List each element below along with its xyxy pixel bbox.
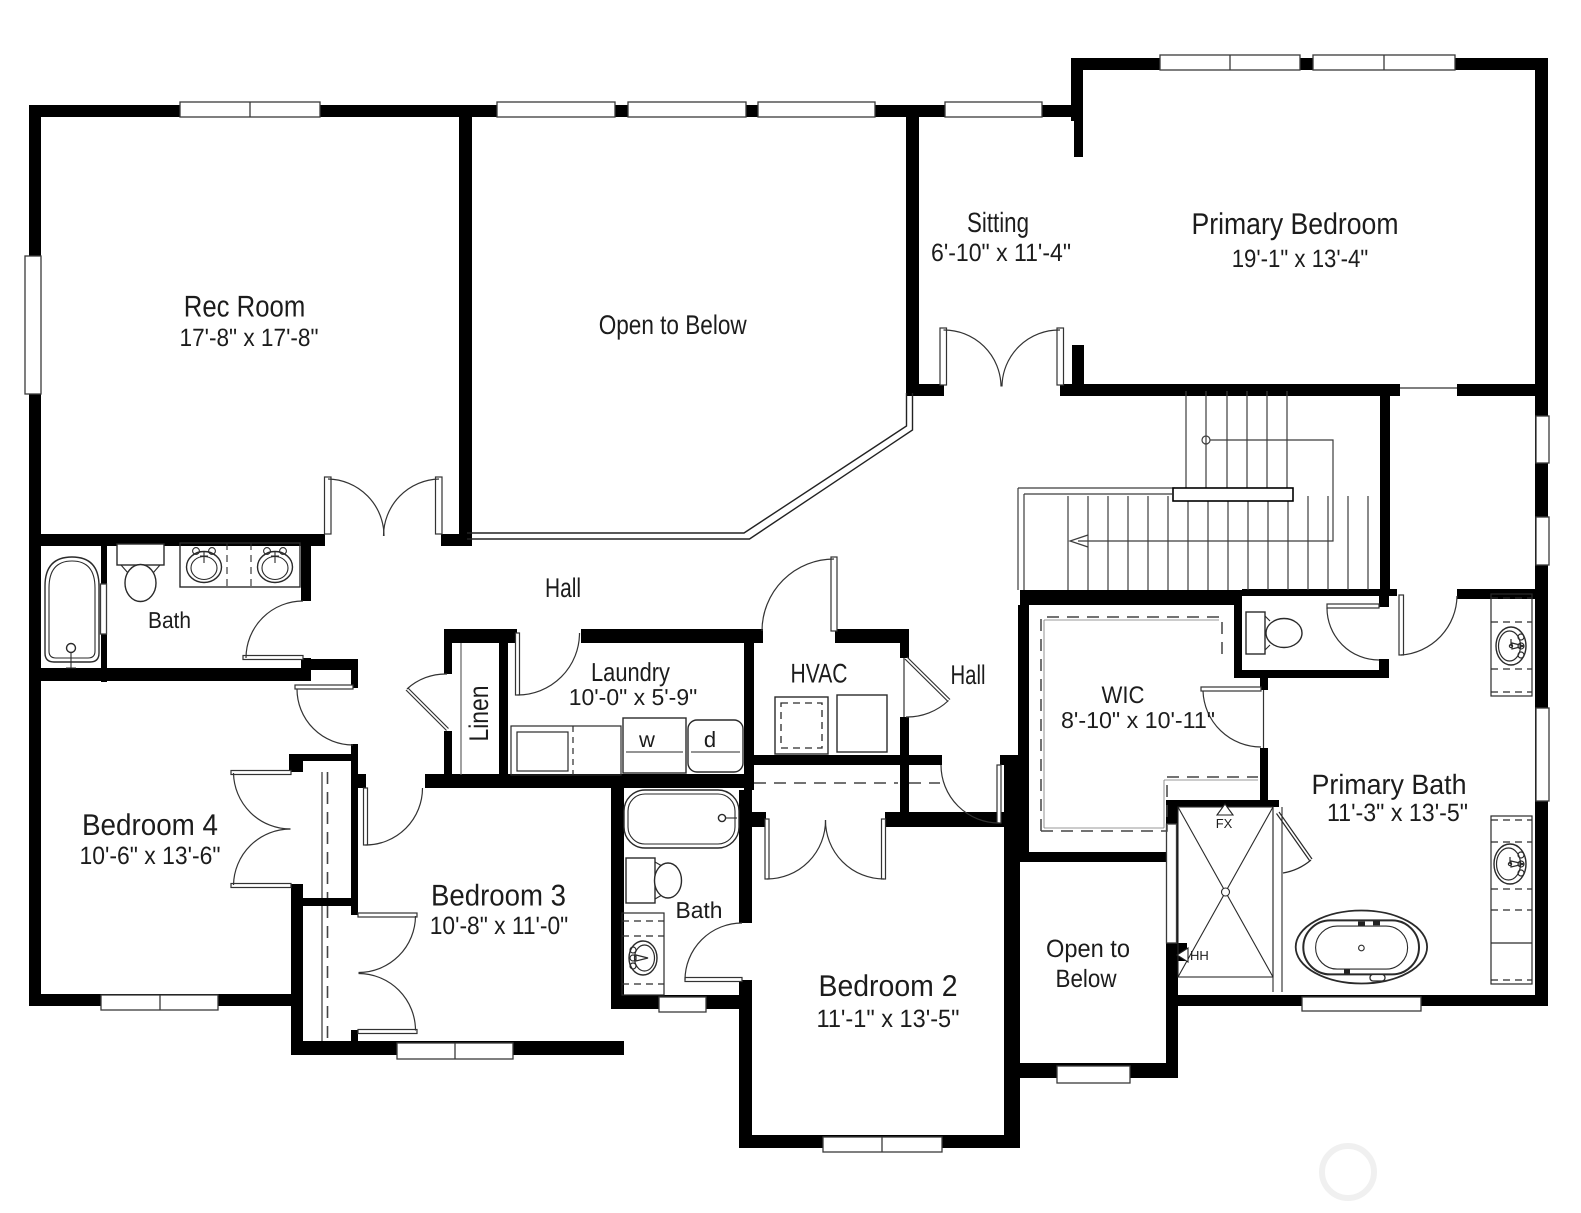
svg-text:Hall: Hall (545, 573, 581, 603)
svg-text:8'-10" x 10'-11": 8'-10" x 10'-11" (1061, 707, 1215, 733)
svg-text:Open to: Open to (1046, 935, 1130, 963)
svg-text:10'-8" x 11'-0": 10'-8" x 11'-0" (430, 912, 569, 940)
svg-text:Hall: Hall (951, 660, 986, 690)
svg-text:10'-6" x 13'-6": 10'-6" x 13'-6" (80, 842, 221, 870)
svg-text:6'-10" x 11'-4": 6'-10" x 11'-4" (931, 239, 1071, 267)
svg-text:Bedroom 2: Bedroom 2 (819, 970, 958, 1003)
svg-text:WIC: WIC (1102, 682, 1145, 709)
svg-text:HVAC: HVAC (791, 659, 848, 689)
svg-text:10'-0" x 5'-9": 10'-0" x 5'-9" (569, 684, 698, 710)
svg-text:11'-3" x 13'-5": 11'-3" x 13'-5" (1327, 799, 1468, 827)
svg-text:Bath: Bath (148, 607, 191, 633)
svg-text:Bedroom 4: Bedroom 4 (82, 809, 218, 842)
svg-text:17'-8" x 17'-8": 17'-8" x 17'-8" (180, 324, 319, 352)
svg-text:Rec Room: Rec Room (184, 291, 306, 324)
svg-text:Laundry: Laundry (591, 657, 670, 687)
svg-text:w: w (638, 727, 655, 752)
svg-text:Primary Bath: Primary Bath (1312, 769, 1467, 800)
svg-text:19'-1" x 13'-4": 19'-1" x 13'-4" (1232, 245, 1369, 273)
svg-text:FX: FX (1216, 816, 1233, 831)
svg-text:Primary Bedroom: Primary Bedroom (1192, 208, 1399, 241)
svg-text:HH: HH (1190, 948, 1209, 963)
svg-text:11'-1" x 13'-5": 11'-1" x 13'-5" (817, 1005, 960, 1033)
svg-text:Open to Below: Open to Below (599, 310, 747, 340)
svg-text:Below: Below (1056, 965, 1118, 993)
svg-text:Bath: Bath (676, 897, 723, 923)
svg-text:Sitting: Sitting (967, 207, 1029, 238)
svg-text:Linen: Linen (464, 686, 494, 742)
svg-text:d: d (704, 727, 716, 752)
svg-text:Bedroom 3: Bedroom 3 (431, 880, 566, 913)
